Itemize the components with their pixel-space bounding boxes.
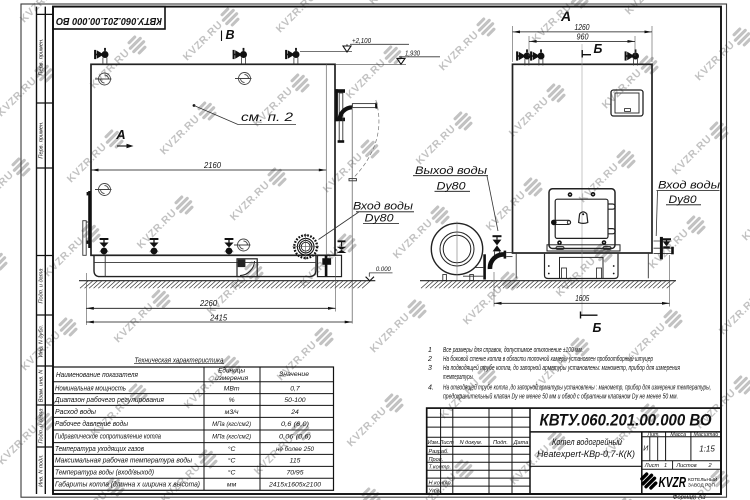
svg-text:Дата: Дата	[513, 440, 529, 446]
svg-text:А: А	[560, 8, 571, 24]
svg-text:3: 3	[428, 365, 432, 372]
svg-text:Техническая характеристика: Техническая характеристика	[135, 355, 224, 364]
svg-text:Лист: Лист	[438, 440, 454, 446]
svg-text:температуры.: температуры.	[443, 374, 474, 381]
svg-text:Dy80: Dy80	[437, 180, 467, 192]
svg-text:не более 250: не более 250	[276, 445, 314, 453]
svg-text:960: 960	[577, 33, 589, 42]
svg-text:Б: Б	[594, 42, 603, 56]
svg-text:Инв. N дубл.: Инв. N дубл.	[38, 325, 44, 357]
svg-text:4.: 4.	[428, 384, 434, 391]
svg-text:Утв.: Утв.	[428, 489, 442, 495]
svg-text:Б: Б	[593, 321, 602, 335]
svg-text:Инв. N подл.: Инв. N подл.	[38, 454, 44, 487]
svg-text:Масштаб: Масштаб	[694, 432, 720, 438]
svg-text:Подп.: Подп.	[493, 440, 508, 446]
svg-text:МПа (кгс/см2): МПа (кгс/см2)	[212, 421, 251, 428]
svg-text:Листов: Листов	[675, 463, 696, 469]
svg-text:Изм.: Изм.	[428, 440, 440, 446]
svg-text:На боковой стенке котла в обла: На боковой стенке котла в области топочн…	[443, 355, 653, 363]
svg-text:мм: мм	[227, 482, 237, 489]
svg-text:70/95: 70/95	[286, 470, 303, 477]
svg-text:2: 2	[427, 356, 432, 363]
svg-text:Dy80: Dy80	[365, 213, 395, 225]
svg-text:предохранительный клапан Dу н: предохранительный клапан Dу не менее 50 …	[443, 393, 678, 401]
svg-text:1260: 1260	[575, 23, 590, 32]
svg-text:Котел водогрейный: Котел водогрейный	[552, 437, 622, 447]
svg-text:1:15: 1:15	[699, 444, 715, 453]
svg-text:1605: 1605	[575, 294, 589, 303]
svg-text:+2,100: +2,100	[352, 38, 371, 45]
svg-text:см. п. 2: см. п. 2	[241, 112, 294, 124]
svg-text:°С: °С	[228, 457, 236, 465]
svg-text:2415: 2415	[209, 312, 227, 322]
svg-text:0.000: 0.000	[376, 266, 391, 273]
svg-text:Расход воды: Расход воды	[55, 408, 97, 416]
svg-text:50-100: 50-100	[284, 397, 305, 404]
svg-text:Температура уходящих газов: Температура уходящих газов	[55, 445, 144, 453]
svg-text:2160: 2160	[203, 160, 221, 170]
svg-text:Все размеры для справок, допус: Все размеры для справок, допустимое откл…	[443, 346, 583, 354]
svg-text:Пров.: Пров.	[429, 457, 444, 463]
svg-text:Heatexpert-КВр-0,7-К(К): Heatexpert-КВр-0,7-К(К)	[537, 449, 635, 459]
svg-text:На отводящей трубе котла ,до з: На отводящей трубе котла ,до запорной ар…	[443, 383, 711, 391]
svg-text:А: А	[115, 127, 125, 142]
svg-text:Значение: Значение	[279, 371, 309, 378]
svg-text:Перв. примен.: Перв. примен.	[38, 121, 44, 158]
svg-text:На подводящей трубе котла, д: На подводящей трубе котла, до запорной а…	[443, 364, 680, 372]
svg-text:%: %	[229, 397, 235, 404]
svg-text:Т.контр.: Т.контр.	[429, 465, 452, 471]
svg-text:Габариты котла (длинна х ширин: Габариты котла (длинна х ширина х высота…	[55, 481, 200, 489]
svg-text:Наименование показателя: Наименование показателя	[56, 372, 138, 379]
svg-text:Выход воды: Выход воды	[415, 165, 487, 177]
svg-text:Максимальная рабочая температу: Максимальная рабочая температура воды	[55, 457, 193, 465]
svg-text:Dy80: Dy80	[669, 194, 698, 206]
svg-text:Гидравлическое сопротивление к: Гидравлическое сопротивление котла	[55, 433, 161, 441]
svg-text:КОТЕЛЬНЫЙ: КОТЕЛЬНЫЙ	[688, 475, 717, 482]
svg-text:1: 1	[664, 463, 667, 469]
svg-text:Лист: Лист	[644, 463, 660, 469]
svg-text:измерения: измерения	[215, 375, 248, 382]
svg-text:115: 115	[290, 458, 301, 465]
svg-text:МВт: МВт	[224, 385, 240, 392]
svg-text:м3/ч: м3/ч	[225, 409, 239, 416]
svg-text:Масса: Масса	[670, 432, 686, 438]
svg-text:Перв. примен.: Перв. примен.	[38, 38, 44, 75]
svg-text:Взам. инв. N: Взам. инв. N	[38, 369, 44, 403]
svg-text:1,930: 1,930	[405, 50, 420, 57]
svg-text:Н.контр.: Н.контр.	[429, 481, 453, 487]
svg-text:°С: °С	[228, 469, 236, 477]
svg-text:Вход воды: Вход воды	[658, 179, 720, 191]
svg-text:Номинальная мощность: Номинальная мощность	[55, 385, 126, 392]
svg-text:1: 1	[428, 347, 432, 354]
svg-text:Температура воды (вход/выход): Температура воды (вход/выход)	[55, 469, 154, 477]
svg-text:°С: °С	[228, 445, 236, 453]
svg-text:Рабочее давление воды: Рабочее давление воды	[55, 420, 129, 428]
svg-text:Подп. и дата: Подп. и дата	[38, 268, 44, 303]
svg-text:Единицы: Единицы	[218, 367, 245, 375]
svg-text:Вход воды: Вход воды	[353, 201, 413, 213]
svg-text:МПа (кгс/см2): МПа (кгс/см2)	[212, 434, 251, 441]
svg-text:N докум.: N докум.	[460, 440, 483, 446]
svg-text:В: В	[226, 28, 235, 42]
svg-text:24: 24	[290, 409, 299, 416]
svg-text:Формат А3: Формат А3	[673, 495, 706, 500]
svg-text:Подп. и дата: Подп. и дата	[38, 408, 44, 443]
svg-text:KVZR: KVZR	[659, 475, 687, 491]
svg-text:ЗАВОД РЭП: ЗАВОД РЭП	[688, 482, 715, 487]
svg-text:2260: 2260	[199, 298, 217, 308]
svg-text:0,6 (6,0): 0,6 (6,0)	[281, 421, 309, 428]
svg-text:2415х1605х2100: 2415х1605х2100	[268, 482, 321, 489]
svg-text:Разраб.: Разраб.	[429, 449, 449, 455]
svg-text:0,7: 0,7	[290, 385, 300, 392]
svg-text:КВТУ.060.201.00.000 ВО: КВТУ.060.201.00.000 ВО	[56, 15, 162, 26]
svg-text:КВТУ.060.201.00.000 ВО: КВТУ.060.201.00.000 ВО	[540, 411, 712, 429]
svg-text:Диапазон рабочего регулировани: Диапазон рабочего регулирования	[54, 396, 164, 404]
svg-text:0,06 (0,6): 0,06 (0,6)	[279, 434, 311, 441]
